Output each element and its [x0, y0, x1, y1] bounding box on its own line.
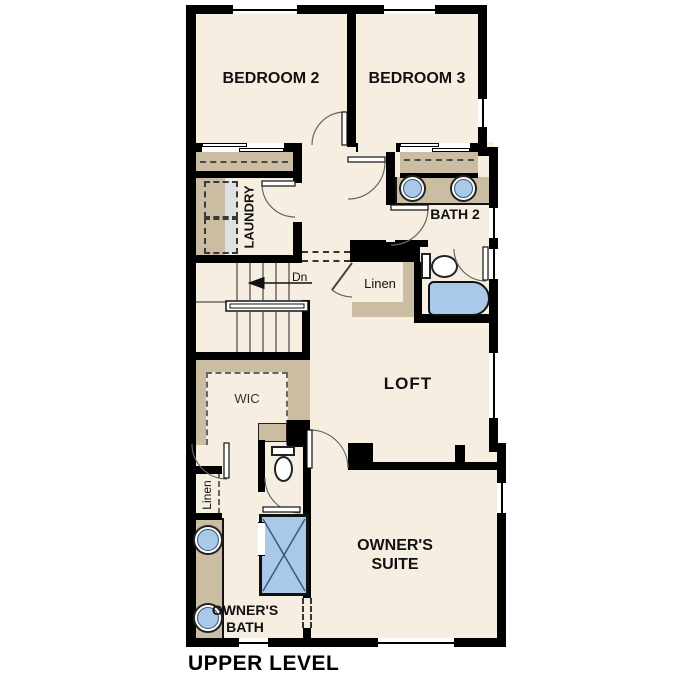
- toilet-bowl: [274, 456, 293, 482]
- sink-basin: [197, 529, 219, 551]
- wall-segment: [196, 255, 302, 263]
- room-label-linen-owner: Linen: [200, 480, 214, 509]
- window-pane: [239, 642, 268, 644]
- wall-segment: [196, 513, 222, 520]
- window: [497, 482, 506, 514]
- room-label-owners-bath: OWNER'S BATH: [195, 602, 295, 635]
- room-label-bedroom3: BEDROOM 3: [352, 70, 482, 89]
- wall-segment: [186, 638, 506, 647]
- wall-segment: [186, 5, 196, 647]
- wall-segment: [258, 440, 265, 492]
- toilet-icon: [421, 253, 431, 279]
- window: [489, 352, 498, 419]
- wall-segment: [373, 462, 497, 470]
- door-opening: [358, 143, 396, 152]
- window-pane: [501, 483, 503, 513]
- room-label-wic: WIC: [210, 391, 284, 406]
- door-opening: [302, 143, 347, 152]
- window-pane: [482, 99, 484, 127]
- room-label-owners-suite: OWNER'S SUITE: [338, 537, 452, 575]
- bedroom3-closet-shelf: [400, 150, 478, 173]
- room-label-laundry: LAUNDRY: [241, 185, 256, 248]
- cased-opening: [302, 251, 350, 262]
- window-pane: [233, 9, 297, 11]
- wall-segment: [497, 443, 506, 647]
- window: [383, 5, 436, 14]
- window: [489, 248, 498, 280]
- toilet-icon: [271, 446, 295, 456]
- wall-segment: [196, 352, 310, 360]
- door-panel: [202, 143, 247, 147]
- cased-opening: [302, 598, 312, 628]
- bedroom2-closet-shelf: [196, 150, 293, 171]
- wall-segment: [302, 300, 310, 360]
- sink-basin: [403, 179, 422, 198]
- window: [478, 98, 487, 128]
- wall-segment: [303, 628, 311, 647]
- wall-segment: [455, 445, 465, 470]
- window: [377, 638, 455, 647]
- toilet-bowl: [431, 255, 458, 278]
- closet-rod-line: [200, 161, 288, 163]
- window-pane: [378, 642, 454, 644]
- closet-bypass-doors: [202, 143, 284, 152]
- door-opening: [293, 183, 302, 222]
- stair-direction-label: Dn: [292, 270, 316, 284]
- sink-icon: [399, 175, 426, 202]
- door-opening: [386, 205, 395, 242]
- page-title: UPPER LEVEL: [188, 652, 339, 676]
- door-panel: [400, 143, 439, 147]
- door-panel: [239, 148, 284, 152]
- room-label-loft: LOFT: [358, 374, 458, 394]
- room-label-linen-hall: Linen: [355, 276, 405, 291]
- floor-plan: BEDROOM 2 BEDROOM 3 LAUNDRY BATH 2 Linen…: [0, 0, 687, 687]
- wall-segment: [348, 443, 373, 470]
- wall-segment: [196, 466, 222, 474]
- wall-segment: [196, 171, 302, 178]
- shower-icon: [259, 514, 309, 596]
- door-panel: [432, 148, 471, 152]
- window-pane: [493, 249, 495, 279]
- washer-dryer-icon: [204, 218, 238, 254]
- bathtub-icon: [428, 281, 490, 316]
- window-pane: [384, 9, 435, 11]
- room-label-bath2: BATH 2: [425, 206, 485, 223]
- sink-icon: [193, 525, 223, 555]
- closet-bypass-doors: [400, 143, 470, 152]
- shower-door-opening: [258, 522, 265, 556]
- closet-rod-line: [404, 159, 474, 161]
- window: [238, 638, 269, 647]
- linen-hall-shelf-bottom: [352, 302, 414, 317]
- window-pane: [493, 208, 495, 238]
- room-label-bedroom2: BEDROOM 2: [196, 70, 346, 89]
- window: [489, 207, 498, 239]
- washer-dryer-icon: [204, 181, 238, 218]
- window-pane: [493, 353, 495, 418]
- sink-icon: [450, 175, 477, 202]
- window: [232, 5, 298, 14]
- sink-basin: [454, 179, 473, 198]
